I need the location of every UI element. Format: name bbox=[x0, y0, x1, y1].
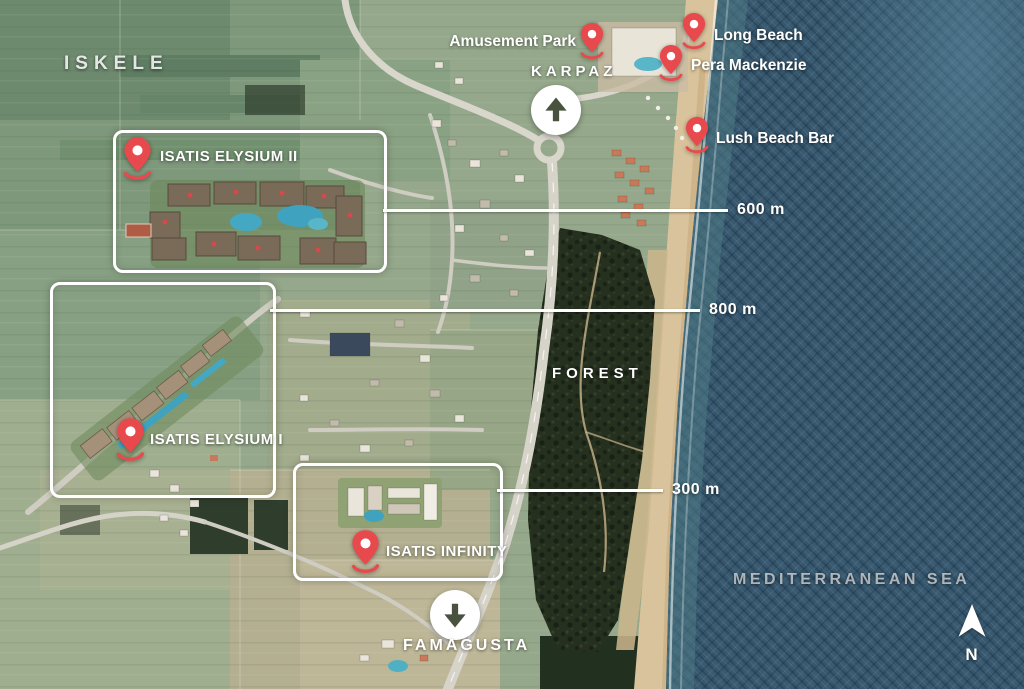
famagusta-label: FAMAGUSTA bbox=[403, 638, 530, 654]
north-arrow-icon bbox=[954, 604, 990, 638]
isatis-infinity-label: ISATIS INFINITY bbox=[386, 544, 507, 559]
distance-label-600m: 600 m bbox=[737, 202, 785, 218]
compass-north-label: N bbox=[948, 645, 996, 665]
project-area-isatis-elysium-i[interactable] bbox=[50, 282, 276, 498]
famagusta-direction-marker[interactable] bbox=[430, 590, 480, 640]
lush-beach-bar-label: Lush Beach Bar bbox=[716, 131, 834, 147]
lush-beach-bar-pin-icon[interactable] bbox=[684, 116, 710, 154]
karpaz-label: KARPAZ bbox=[531, 64, 616, 79]
long-beach-label: Long Beach bbox=[714, 28, 803, 44]
distance-line-800m bbox=[270, 309, 700, 312]
isatis-elysium-ii-label: ISATIS ELYSIUM II bbox=[160, 149, 298, 164]
long-beach-pin-icon[interactable] bbox=[681, 12, 707, 50]
distance-line-300m bbox=[497, 489, 663, 492]
distance-label-300m: 300 m bbox=[672, 482, 720, 498]
forest-region-label: FOREST bbox=[552, 366, 643, 381]
pera-mackenzie-label: Pera Mackenzie bbox=[691, 58, 806, 74]
pera-mackenzie-pin-icon[interactable] bbox=[658, 44, 684, 82]
isatis-infinity-pin-icon[interactable] bbox=[350, 529, 381, 574]
karpaz-direction-marker[interactable] bbox=[531, 85, 581, 135]
isatis-elysium-ii-pin-icon[interactable] bbox=[122, 136, 153, 181]
isatis-elysium-i-label: ISATIS ELYSIUM I bbox=[150, 432, 283, 447]
mediterranean-sea-label: MEDITERRANEAN SEA bbox=[733, 572, 970, 588]
iskele-region-label: ISKELE bbox=[64, 54, 169, 73]
amusement-park-label: Amusement Park bbox=[449, 34, 576, 50]
map-canvas: ISKELE FOREST MEDITERRANEAN SEA KARPAZ F… bbox=[0, 0, 1024, 689]
arrow-up-icon bbox=[541, 95, 571, 125]
arrow-down-icon bbox=[440, 600, 470, 630]
distance-line-600m bbox=[383, 209, 728, 212]
amusement-park-pin-icon[interactable] bbox=[579, 22, 605, 60]
isatis-elysium-i-pin-icon[interactable] bbox=[115, 417, 146, 462]
distance-label-800m: 800 m bbox=[709, 302, 757, 318]
compass: N bbox=[948, 604, 996, 665]
project-area-isatis-infinity[interactable] bbox=[293, 463, 503, 581]
